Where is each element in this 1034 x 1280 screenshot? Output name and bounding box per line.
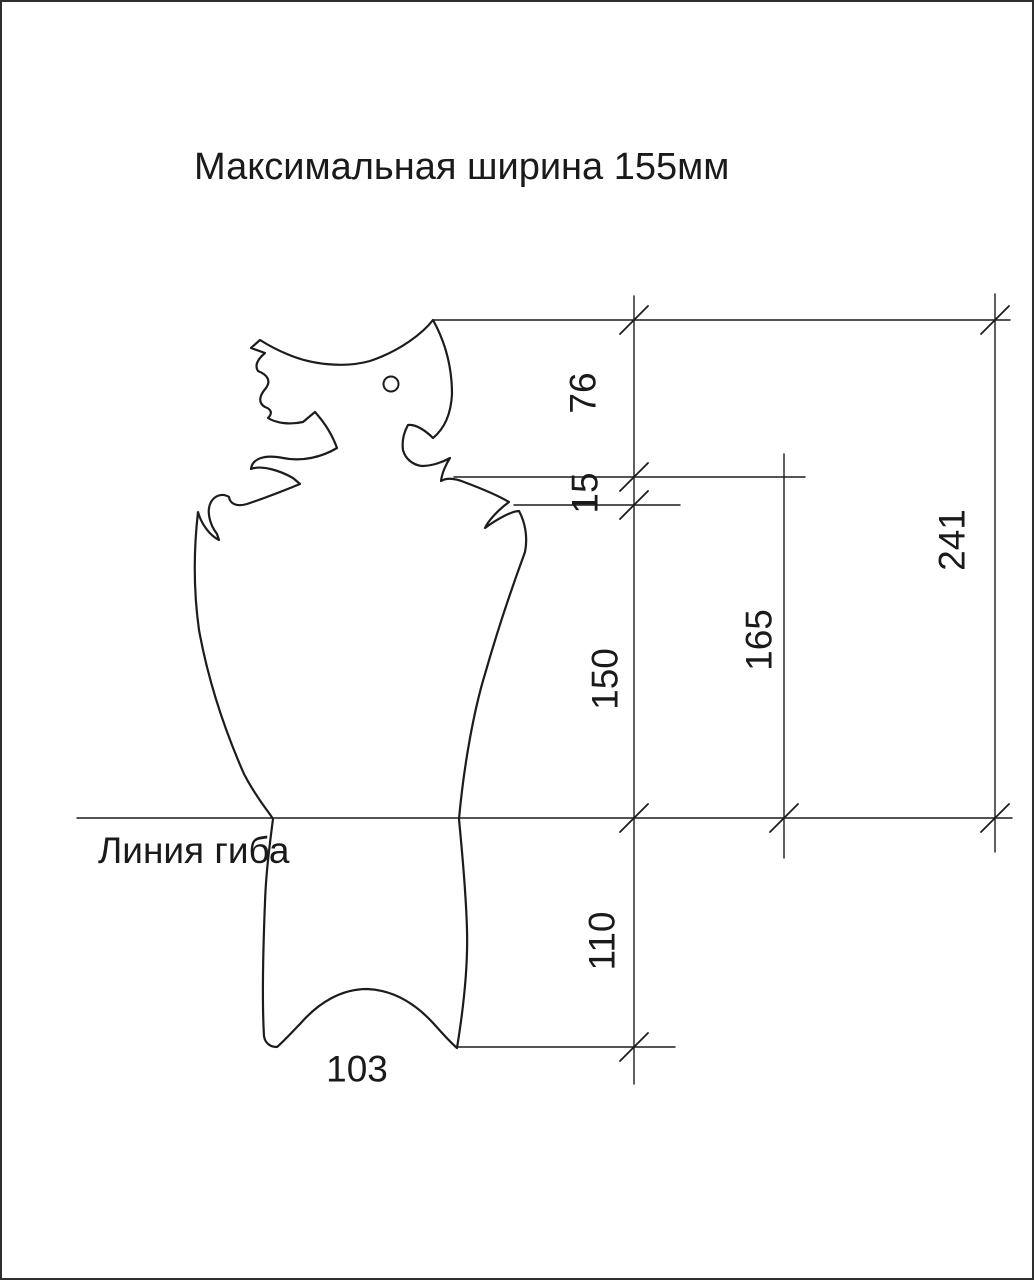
- drawing-title: Максимальная ширина 155мм: [194, 148, 729, 186]
- technical-drawing-svg: [2, 2, 1034, 1280]
- dim-label-body-height: 150: [587, 648, 624, 710]
- dimension-lines: [77, 294, 1012, 1084]
- eye-hole: [384, 377, 399, 392]
- dim-label-neck-to-bend: 165: [741, 609, 778, 671]
- dim-label-head-height: 76: [565, 372, 602, 413]
- dim-label-neck-offset: 15: [567, 472, 604, 513]
- dim-label-top-to-bend: 241: [934, 509, 971, 571]
- pattern-outline-path: [195, 320, 526, 1048]
- pattern-outline: [195, 320, 526, 1048]
- dim-label-bottom-width: 103: [326, 1051, 388, 1088]
- drawing-sheet: Максимальная ширина 155мм Линия гиба 76 …: [0, 0, 1034, 1280]
- bend-line-label: Линия гиба: [98, 832, 289, 869]
- dim-label-lower-height: 110: [584, 912, 621, 971]
- dimension-ticks: [620, 306, 1009, 1061]
